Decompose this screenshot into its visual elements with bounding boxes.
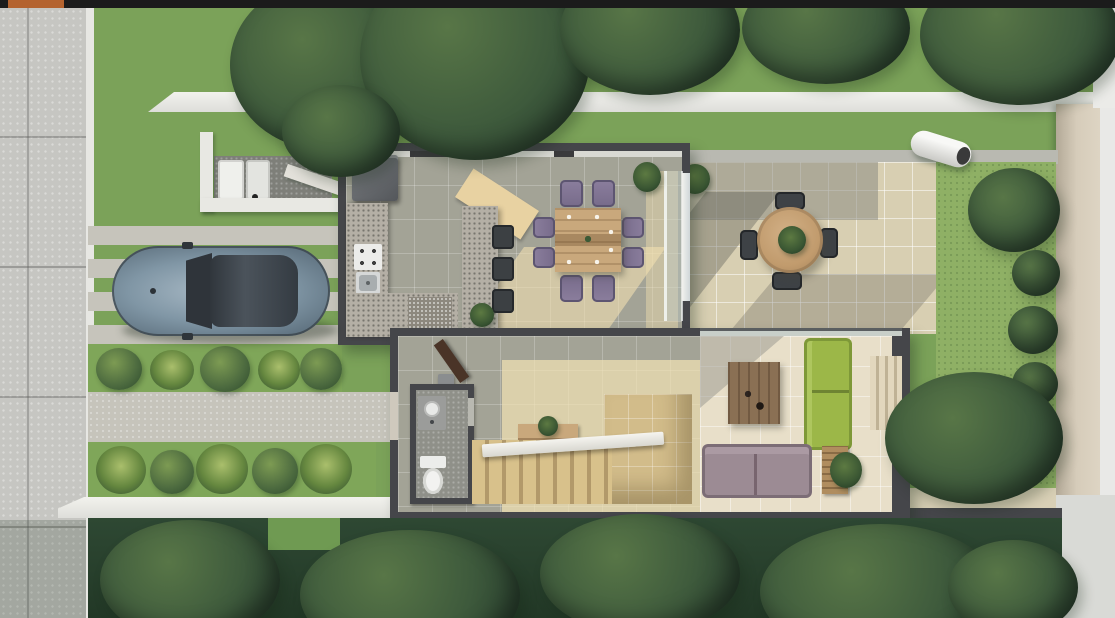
terrace-table-plant (778, 226, 806, 254)
sofa-mauve (702, 444, 812, 498)
place-settings (555, 208, 621, 272)
shrub (300, 348, 342, 390)
car-mirror-left (182, 242, 193, 249)
photo-border-orange-marker (8, 0, 64, 8)
kitchen-sink (356, 272, 380, 294)
tree-canopy (282, 85, 400, 177)
terrace-shadow-table (729, 274, 948, 332)
backyard-tree (968, 168, 1060, 252)
glass-wall-frame (664, 171, 683, 321)
backyard-shrub (1008, 306, 1058, 354)
bathroom-vanity (418, 396, 446, 430)
toilet-tank (420, 456, 446, 468)
dining-chair (533, 247, 555, 268)
ornamental-grass (196, 444, 248, 494)
bar-stool (492, 289, 514, 313)
backyard-shrub (1012, 250, 1060, 296)
bar-stool (492, 225, 514, 249)
entry-walkway (88, 392, 390, 442)
rear-band-grass-gap (268, 518, 340, 550)
dining-chair (560, 275, 583, 302)
tree-canopy (742, 0, 910, 84)
car-hood-emblem (150, 288, 156, 294)
ornamental-grass (150, 350, 194, 390)
ornamental-grass (300, 444, 352, 494)
sidewalk-shade (0, 520, 88, 618)
toilet-bowl (423, 468, 443, 494)
bar-stool (492, 257, 514, 281)
boundary-wall-bottom-left (58, 497, 392, 518)
dining-chair (533, 217, 555, 238)
vanity-faucet (430, 420, 434, 424)
ornamental-grass (96, 446, 146, 494)
terrace-chair-south (772, 272, 802, 290)
terrace-door-glass (682, 173, 690, 301)
dining-chair (560, 180, 583, 207)
house-block-upper (338, 143, 690, 345)
dining-chair (622, 247, 644, 268)
floor-plan-render (0, 0, 1115, 618)
kitchen-dining-floor (346, 151, 682, 337)
sink-drain (366, 281, 370, 285)
coffee-table (728, 362, 780, 424)
stove (354, 244, 382, 270)
car-roof-glass (210, 255, 298, 327)
vanity-sink (424, 401, 440, 417)
ornamental-grass (258, 350, 300, 390)
shrub (252, 448, 298, 494)
dryer (246, 160, 270, 200)
photo-border-strip (0, 0, 1115, 8)
shrub (150, 450, 194, 494)
car (112, 246, 330, 336)
car-mirror-right (182, 333, 193, 340)
living-plant (830, 452, 862, 488)
dining-corner-plant (633, 162, 661, 192)
tree-canopy (920, 0, 1115, 105)
living-terrace-glass-wall (700, 328, 902, 336)
dining-chair (622, 217, 644, 238)
washer (218, 160, 244, 200)
toilet (420, 456, 446, 496)
bathroom-door-opening (468, 398, 474, 426)
terrace-chair-west (740, 230, 758, 260)
car-windshield (186, 253, 212, 329)
stair-console-plant (538, 416, 558, 436)
backyard-large-tree (885, 372, 1063, 504)
shrub (96, 348, 142, 390)
island-plant (470, 303, 494, 327)
laundry-wall-bottom (200, 198, 342, 212)
dining-window-slot (554, 151, 574, 157)
shrub (200, 346, 250, 392)
stair-landing (604, 394, 692, 504)
half-bathroom (410, 384, 474, 504)
dining-chair (592, 275, 615, 302)
dining-table (555, 208, 621, 272)
sofa-green (804, 338, 852, 450)
house-block-lower (390, 328, 910, 520)
front-door-opening (390, 392, 398, 440)
dining-chair (592, 180, 615, 207)
